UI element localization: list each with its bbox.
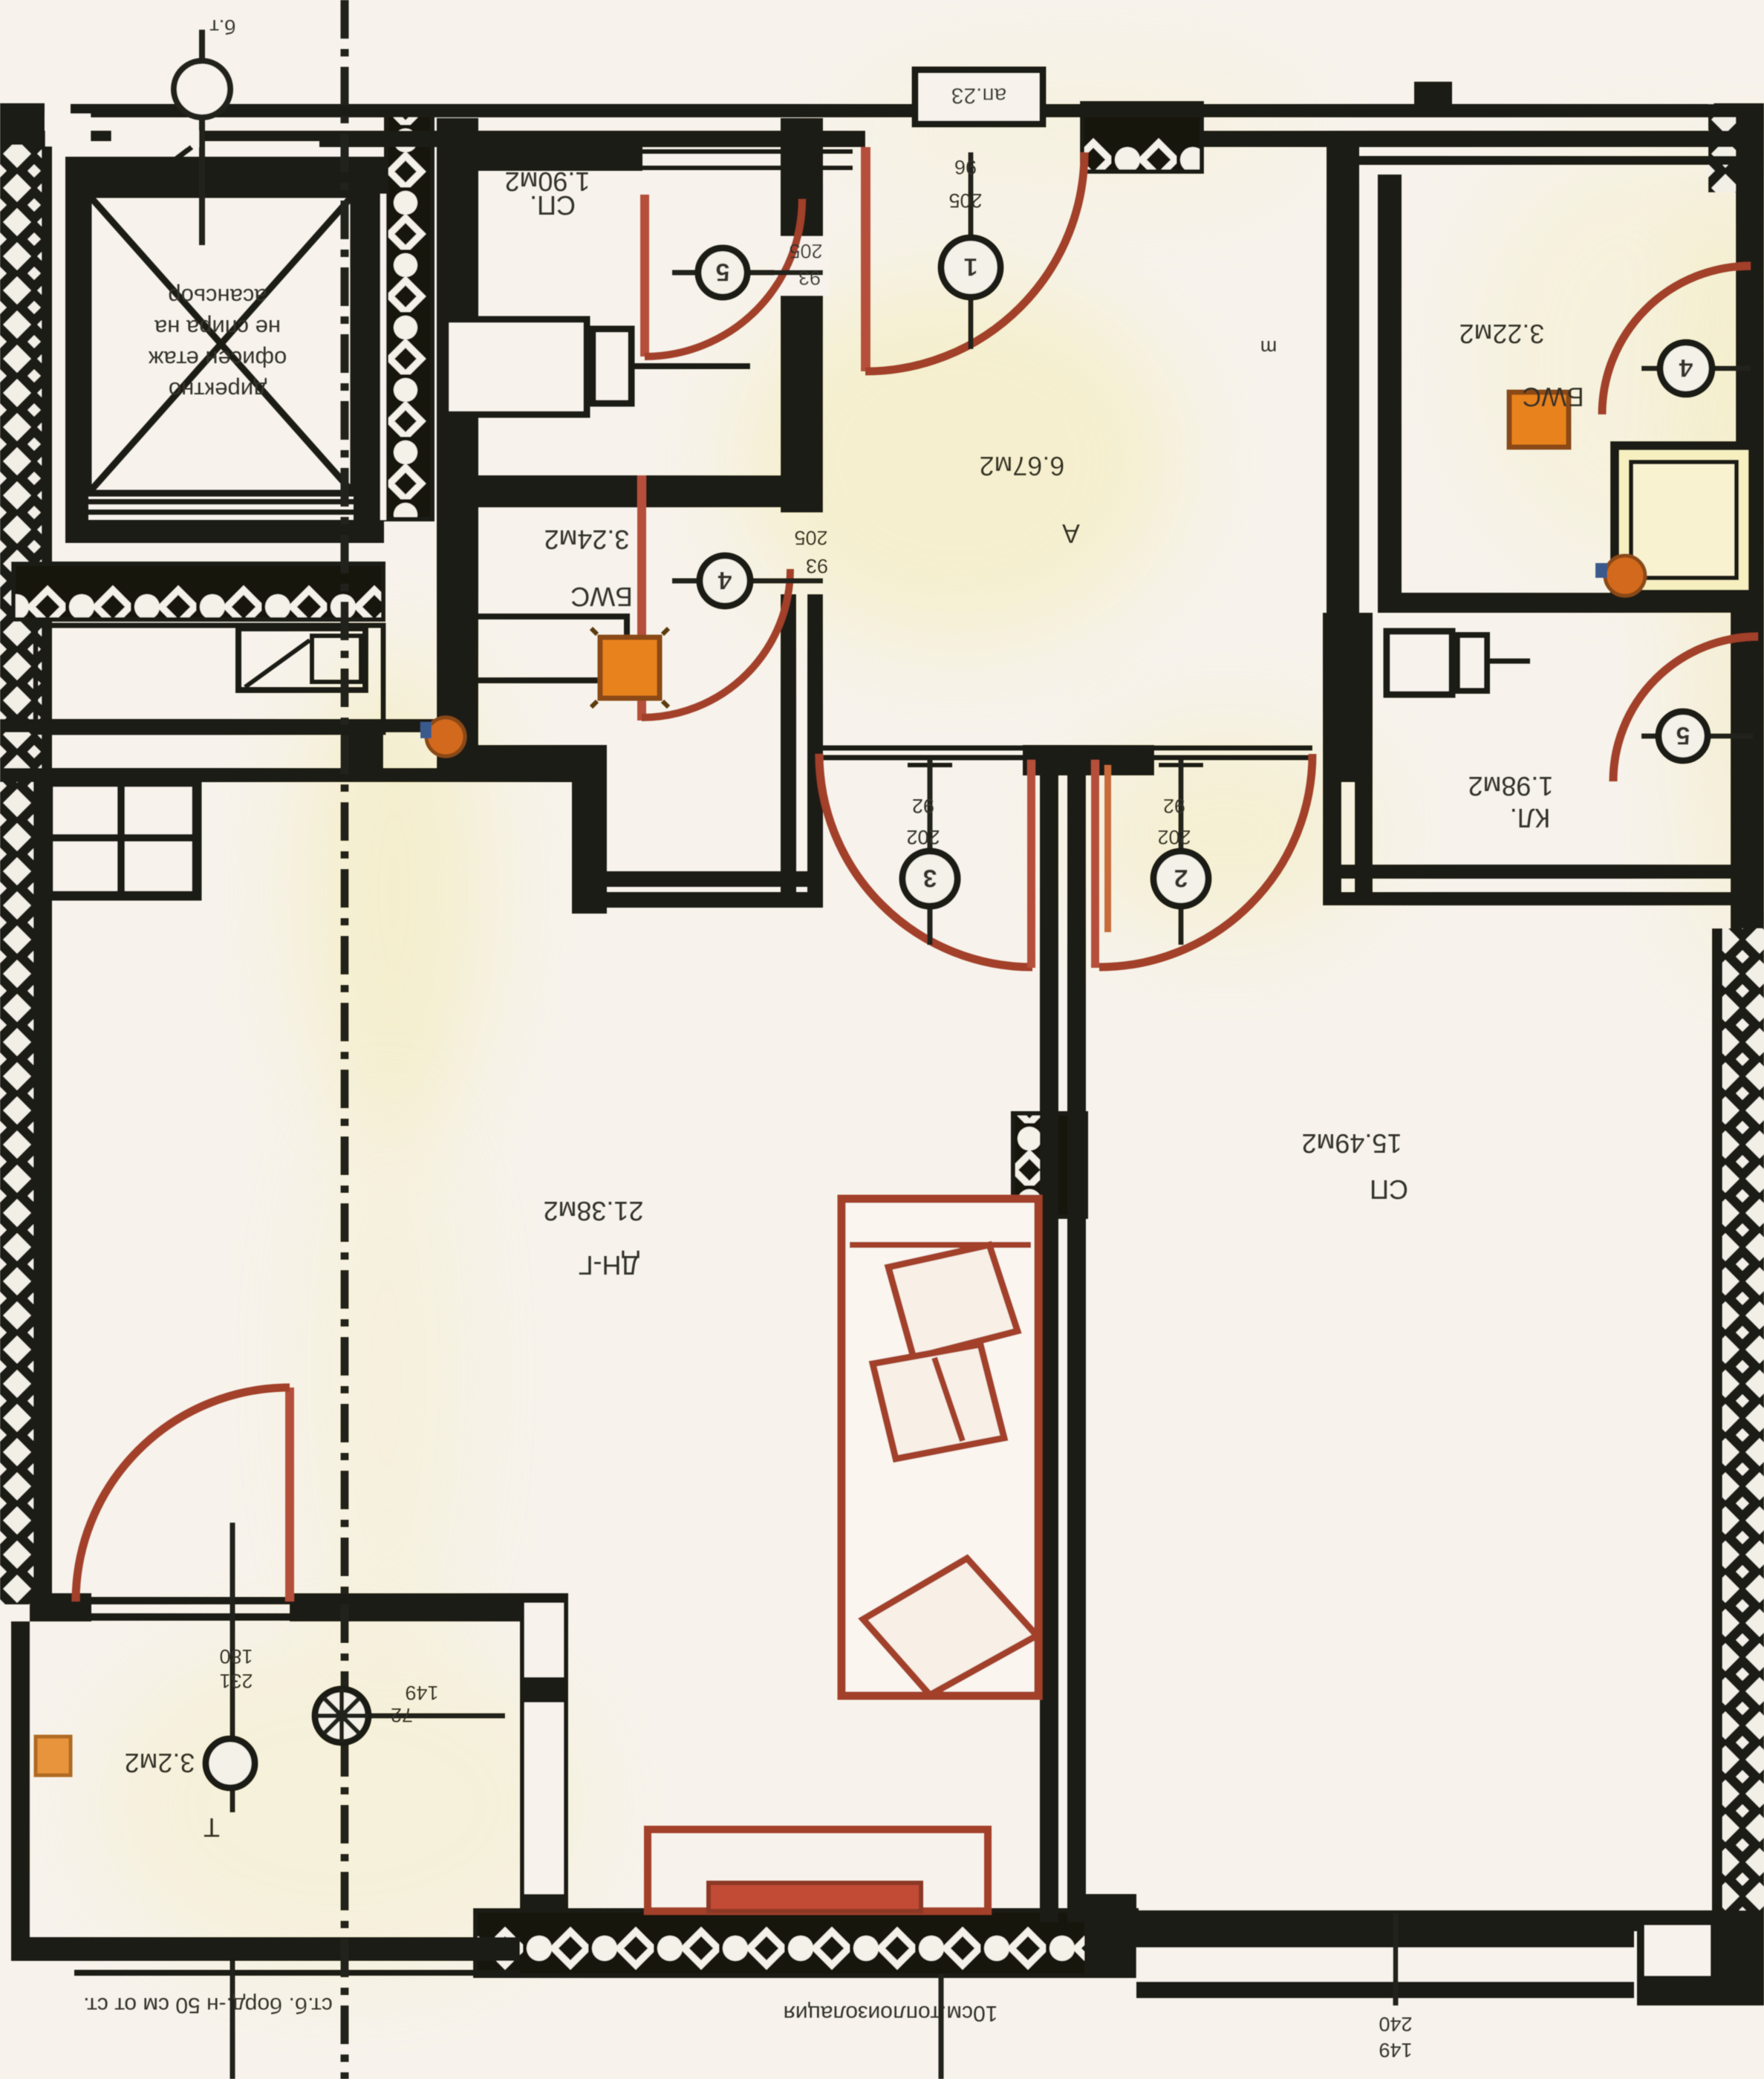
svg-text:240: 240 [1379,2013,1412,2035]
svg-text:2: 2 [1174,864,1188,892]
svg-text:3.22м2: 3.22м2 [1459,319,1545,349]
svg-text:директно: директно [169,377,267,403]
svg-text:231: 231 [219,1670,253,1692]
svg-text:БWC: БWC [570,582,633,612]
svg-text:10см.топлоизолация: 10см.топлоизолация [784,2001,998,2026]
svg-text:СП.: СП. [530,190,576,221]
svg-text:3: 3 [923,864,937,892]
svg-text:m: m [1260,336,1278,359]
svg-text:15.49м2: 15.49м2 [1302,1128,1402,1159]
svg-text:не спира на: не спира на [154,315,281,341]
svg-text:1: 1 [964,253,978,281]
svg-text:202: 202 [1157,826,1191,848]
svg-text:205: 205 [948,189,982,212]
svg-text:6.67м2: 6.67м2 [980,451,1065,481]
svg-text:92: 92 [912,795,934,817]
svg-text:202: 202 [906,826,940,848]
svg-text:205: 205 [789,240,822,262]
svg-text:92: 92 [1163,795,1185,817]
svg-text:1.98м2: 1.98м2 [1468,771,1554,801]
svg-text:21.38м2: 21.38м2 [544,1196,644,1226]
svg-text:Т: Т [204,1812,220,1843]
svg-text:КЛ.: КЛ. [1510,803,1551,833]
svg-text:А: А [1062,518,1080,549]
svg-text:4: 4 [717,566,732,594]
svg-text:5: 5 [716,258,730,286]
svg-text:5: 5 [1676,721,1690,749]
svg-text:асансьор: асансьор [168,284,267,310]
svg-text:149: 149 [1379,2039,1412,2061]
svg-text:ДН-Г: ДН-Г [579,1250,639,1281]
svg-text:93: 93 [806,555,828,577]
svg-text:3.24м2: 3.24м2 [544,524,630,555]
svg-text:ап.23: ап.23 [951,83,1007,108]
svg-text:93: 93 [798,267,821,289]
svg-text:БWC: БWC [1522,382,1584,412]
svg-text:205: 205 [794,527,827,549]
svg-text:офисен етаж: офисен етаж [148,346,287,372]
svg-text:3.2м2: 3.2м2 [125,1748,195,1778]
svg-text:149: 149 [405,1682,438,1704]
svg-text:б.т: б.т [209,16,235,38]
svg-text:96: 96 [954,156,977,178]
svg-text:ст.б. борд.-н 50 см от ст.: ст.б. борд.-н 50 см от ст. [83,1993,333,2017]
svg-text:4: 4 [1679,354,1693,382]
svg-text:СП: СП [1370,1174,1408,1205]
svg-text:180: 180 [219,1645,253,1668]
svg-text:72: 72 [391,1704,413,1726]
